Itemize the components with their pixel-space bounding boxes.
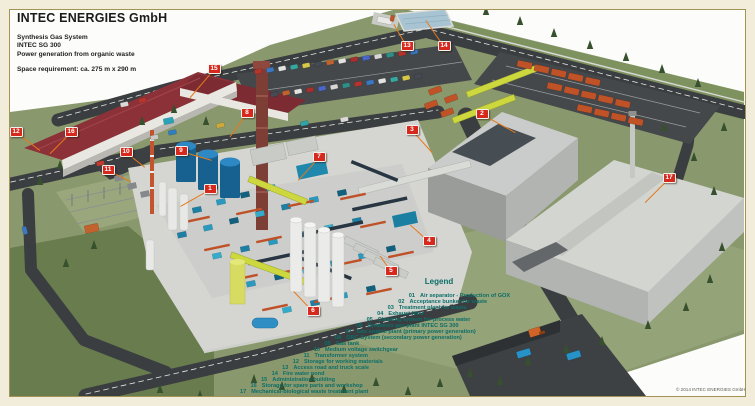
plan-marker-10: 10 bbox=[120, 147, 133, 157]
legend-item-label: Mechanical-biological waste treatment pl… bbox=[251, 389, 368, 395]
plan-marker-3: 3 bbox=[406, 125, 419, 135]
plan-marker-6: 6 bbox=[307, 306, 320, 316]
plan-marker-17: 17 bbox=[663, 173, 676, 183]
plan-marker-16: 16 bbox=[65, 127, 78, 137]
site-plan-poster: INTEC ENERGIES GmbH Synthesis Gas System… bbox=[0, 0, 755, 406]
plan-marker-13: 13 bbox=[401, 41, 414, 51]
subtitle-system: Synthesis Gas System bbox=[17, 34, 167, 42]
plan-marker-12: 12 bbox=[10, 127, 23, 137]
legend-title: Legend bbox=[409, 277, 469, 286]
legend-item-number: 17 bbox=[235, 389, 246, 395]
plan-marker-4: 4 bbox=[423, 236, 436, 246]
company-title: INTEC ENERGIES GmbH bbox=[17, 11, 167, 25]
plan-marker-1: 1 bbox=[204, 184, 217, 194]
subtitle-model: INTEC SG 300 bbox=[17, 42, 167, 50]
title-block: INTEC ENERGIES GmbH Synthesis Gas System… bbox=[17, 11, 167, 73]
plan-marker-9: 9 bbox=[175, 146, 188, 156]
copyright-note: © 2014 INTEC ENERGIES GmbH bbox=[676, 387, 746, 392]
legend-item-17: 17Mechanical-biological waste treatment … bbox=[235, 389, 368, 395]
plan-marker-15: 15 bbox=[208, 64, 221, 74]
subtitle-purpose: Power generation from organic waste bbox=[17, 51, 167, 59]
plan-marker-14: 14 bbox=[438, 41, 451, 51]
legend-item-label: ORC-System (secondary power generation) bbox=[346, 335, 462, 341]
plan-marker-8: 8 bbox=[241, 108, 254, 118]
plan-marker-7: 7 bbox=[313, 152, 326, 162]
space-requirement: Space requirement: ca. 275 m x 290 m bbox=[17, 66, 167, 73]
plan-marker-5: 5 bbox=[385, 266, 398, 276]
plan-marker-11: 11 bbox=[102, 165, 115, 175]
plan-marker-2: 2 bbox=[476, 109, 489, 119]
